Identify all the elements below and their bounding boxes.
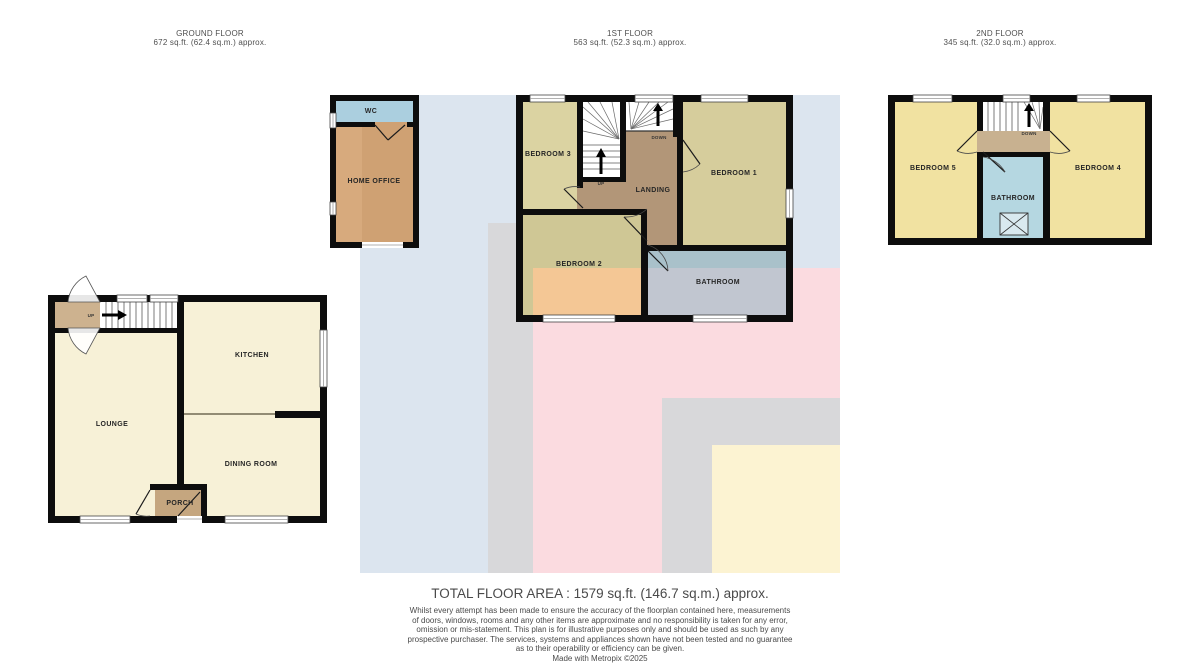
lounge-label: LOUNGE (96, 421, 128, 428)
ground-floor-name: GROUND FLOOR (50, 29, 370, 38)
second-floor-title: 2ND FLOOR 345 sq.ft. (32.0 sq.m.) approx… (840, 29, 1160, 47)
bathroom2-right-wall (1043, 152, 1050, 238)
annex-plan: WC HOME OFFICE (330, 95, 419, 248)
dining-room-label: DINING ROOM (225, 461, 278, 468)
bathroom1-top-wall (677, 245, 786, 251)
shower-tray (1000, 213, 1028, 235)
second-down-label: DOWN (1021, 131, 1036, 136)
bedroom2-wall (523, 209, 647, 215)
bathroom2-label: BATHROOM (991, 195, 1035, 202)
ground-up-label: UP (88, 313, 95, 318)
bg-block-cream (712, 445, 840, 573)
bedroom2-label: BEDROOM 2 (556, 261, 602, 268)
first-stairs-down (626, 102, 673, 131)
second-floor-name: 2ND FLOOR (840, 29, 1160, 38)
second-floor-area: 345 sq.ft. (32.0 sq.m.) approx. (840, 38, 1160, 47)
bg-block-gray-v (662, 445, 712, 573)
first-floor-area: 563 sq.ft. (52.3 sq.m.) approx. (470, 38, 790, 47)
first-up-label: UP (598, 181, 605, 186)
bedroom2-overlap (533, 268, 641, 315)
first-floor-title: 1ST FLOOR 563 sq.ft. (52.3 sq.m.) approx… (470, 29, 790, 47)
bathroom1-label: BATHROOM (696, 279, 740, 286)
first-floor-svg: BEDROOM 3 BEDROOM 1 LANDING BEDROOM 2 BA… (516, 95, 793, 322)
bedroom1-wall (677, 172, 683, 251)
bathroom2-top-wall (1005, 152, 1045, 157)
bathroom1-floor-lower (648, 268, 786, 315)
total-floor-area: TOTAL FLOOR AREA : 1579 sq.ft. (146.7 sq… (380, 586, 820, 601)
wc-label: WC (365, 108, 377, 115)
second-landing-floor (977, 131, 1050, 152)
ground-floor-title: GROUND FLOOR 672 sq.ft. (62.4 sq.m.) app… (50, 29, 370, 47)
second-stairs (983, 102, 1043, 131)
bathroom1-floor (648, 251, 786, 268)
lounge-divider-wall (177, 302, 184, 485)
ground-stairs (100, 302, 177, 328)
porch-label: PORCH (166, 500, 193, 507)
bedroom4-label: BEDROOM 4 (1075, 165, 1121, 172)
annex-svg: WC HOME OFFICE (330, 95, 419, 248)
bathroom1-left-wall (641, 245, 648, 315)
bedroom1-label: BEDROOM 1 (711, 170, 757, 177)
ground-floor-area: 672 sq.ft. (62.4 sq.m.) approx. (50, 38, 370, 47)
bathroom2-left-wall (977, 152, 983, 238)
floorplan-page: GROUND FLOOR 672 sq.ft. (62.4 sq.m.) app… (0, 0, 1200, 667)
bedroom5-label: BEDROOM 5 (910, 165, 956, 172)
second-floor-plan: BEDROOM 5 BEDROOM 4 BATHROOM DOWN (888, 95, 1152, 245)
first-stairs-up (583, 102, 620, 177)
ground-floor-plan: UP (48, 295, 327, 523)
bg-block-gray-arm (662, 398, 840, 445)
second-window (913, 95, 1110, 102)
bedroom3-label: BEDROOM 3 (525, 151, 571, 158)
bedroom3-wall (577, 102, 583, 188)
first-down-label: DOWN (651, 135, 666, 140)
first-floor-plan: BEDROOM 3 BEDROOM 1 LANDING BEDROOM 2 BA… (516, 95, 793, 322)
disclaimer-text: Whilst every attempt has been made to en… (380, 606, 820, 664)
stairs-divider-wall (620, 102, 626, 182)
landing-label: LANDING (636, 187, 671, 194)
ground-floor-svg: UP (48, 295, 327, 523)
first-floor-name: 1ST FLOOR (470, 29, 790, 38)
footer: TOTAL FLOOR AREA : 1579 sq.ft. (146.7 sq… (380, 586, 820, 664)
kitchen-label: KITCHEN (235, 352, 269, 359)
home-office-label: HOME OFFICE (347, 178, 400, 185)
second-floor-svg: BEDROOM 5 BEDROOM 4 BATHROOM DOWN (888, 95, 1152, 245)
